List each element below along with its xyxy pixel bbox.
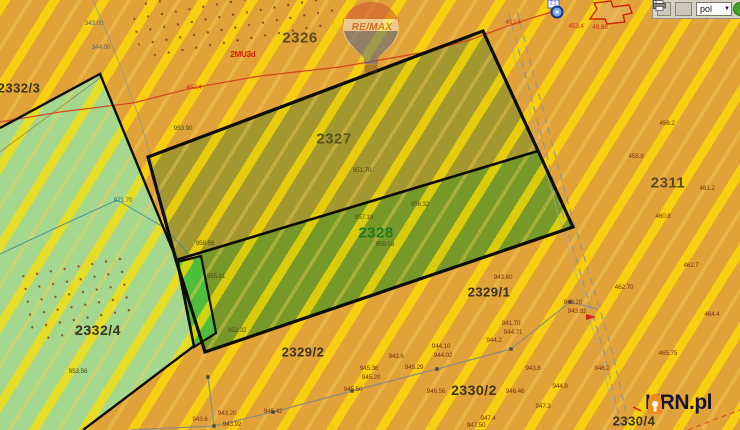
language-select[interactable]: pol ▼: [696, 2, 732, 16]
krn-watermark: KRN.pl: [645, 392, 712, 413]
map-toolbar: pol ▼: [652, 0, 740, 19]
remax-brand-text: RE/MAX: [352, 22, 393, 33]
print-button[interactable]: [675, 2, 692, 16]
chevron-down-icon: ▼: [724, 6, 730, 12]
green-action-button[interactable]: [733, 2, 740, 16]
language-select-value: pol: [700, 4, 712, 14]
krn-house-icon: [645, 392, 665, 416]
map-viewport[interactable]: 23262327232823112329/12329/22330/22330/4…: [0, 0, 740, 430]
balloon-icon: [343, 2, 399, 72]
remax-watermark: RE/MAX: [340, 0, 404, 78]
printer-icon: [653, 0, 666, 11]
